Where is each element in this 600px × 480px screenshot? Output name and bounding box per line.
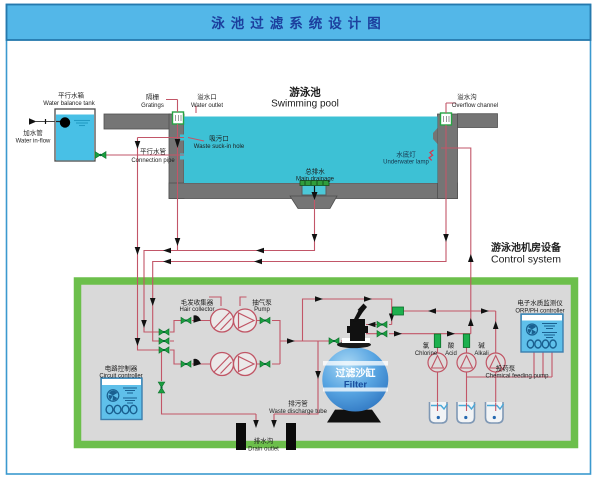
svg-text:Drain outlet: Drain outlet (248, 447, 279, 453)
svg-text:Chlorine: Chlorine (415, 351, 438, 357)
svg-text:投药泵: 投药泵 (496, 364, 516, 373)
svg-text:Main drainage: Main drainage (296, 177, 335, 183)
svg-text:Water outlet: Water outlet (191, 103, 223, 109)
svg-text:加水管: 加水管 (23, 128, 43, 137)
svg-text:排污管: 排污管 (288, 399, 308, 408)
svg-text:排水沟: 排水沟 (254, 436, 274, 445)
svg-text:Overflow channel: Overflow channel (452, 103, 498, 109)
svg-text:Waste discharge tube: Waste discharge tube (269, 409, 327, 415)
svg-text:抽气泵: 抽气泵 (252, 298, 272, 307)
svg-text:游泳池: 游泳池 (289, 86, 321, 99)
svg-text:Circuit controller: Circuit controller (99, 374, 142, 380)
svg-text:氯: 氯 (423, 341, 430, 350)
svg-text:Water balance tank: Water balance tank (43, 101, 95, 107)
svg-text:碱: 碱 (478, 342, 485, 350)
svg-text:水底灯: 水底灯 (396, 150, 416, 159)
svg-text:Water in-flow: Water in-flow (16, 139, 51, 145)
svg-text:过滤沙缸: 过滤沙缸 (336, 367, 376, 380)
svg-text:Control system: Control system (491, 254, 561, 266)
svg-text:Waste suck-in hole: Waste suck-in hole (194, 144, 245, 150)
svg-text:平行水箱: 平行水箱 (58, 91, 85, 100)
svg-text:酸: 酸 (448, 341, 455, 350)
svg-text:泳池过滤系统设计图: 泳池过滤系统设计图 (211, 15, 387, 31)
svg-text:Filter: Filter (344, 380, 368, 391)
svg-text:ORP/PH controller: ORP/PH controller (515, 309, 564, 315)
svg-text:Underwater lamp: Underwater lamp (383, 160, 429, 166)
svg-text:隔栅: 隔栅 (146, 92, 160, 101)
svg-text:Gratings: Gratings (141, 103, 164, 109)
svg-text:游泳池机房设备: 游泳池机房设备 (491, 241, 562, 254)
svg-text:Acid: Acid (445, 351, 457, 357)
svg-text:电子水质监测仪: 电子水质监测仪 (517, 298, 563, 307)
svg-text:吸污口: 吸污口 (209, 135, 229, 143)
svg-text:溢水口: 溢水口 (197, 92, 217, 101)
svg-text:Pump: Pump (254, 307, 270, 313)
svg-text:Alkali: Alkali (474, 351, 488, 357)
svg-text:平行水管: 平行水管 (140, 147, 167, 156)
svg-text:电路控制器: 电路控制器 (105, 364, 138, 373)
svg-text:溢水沟: 溢水沟 (457, 92, 477, 101)
svg-text:毛发收集器: 毛发收集器 (181, 298, 214, 307)
svg-text:Swimming pool: Swimming pool (271, 99, 339, 110)
svg-text:Chemical feeding pump: Chemical feeding pump (485, 374, 549, 380)
svg-text:Connection pipe: Connection pipe (131, 158, 175, 164)
svg-text:Hair collector: Hair collector (179, 307, 214, 313)
svg-text:总排水: 总排水 (305, 167, 325, 176)
